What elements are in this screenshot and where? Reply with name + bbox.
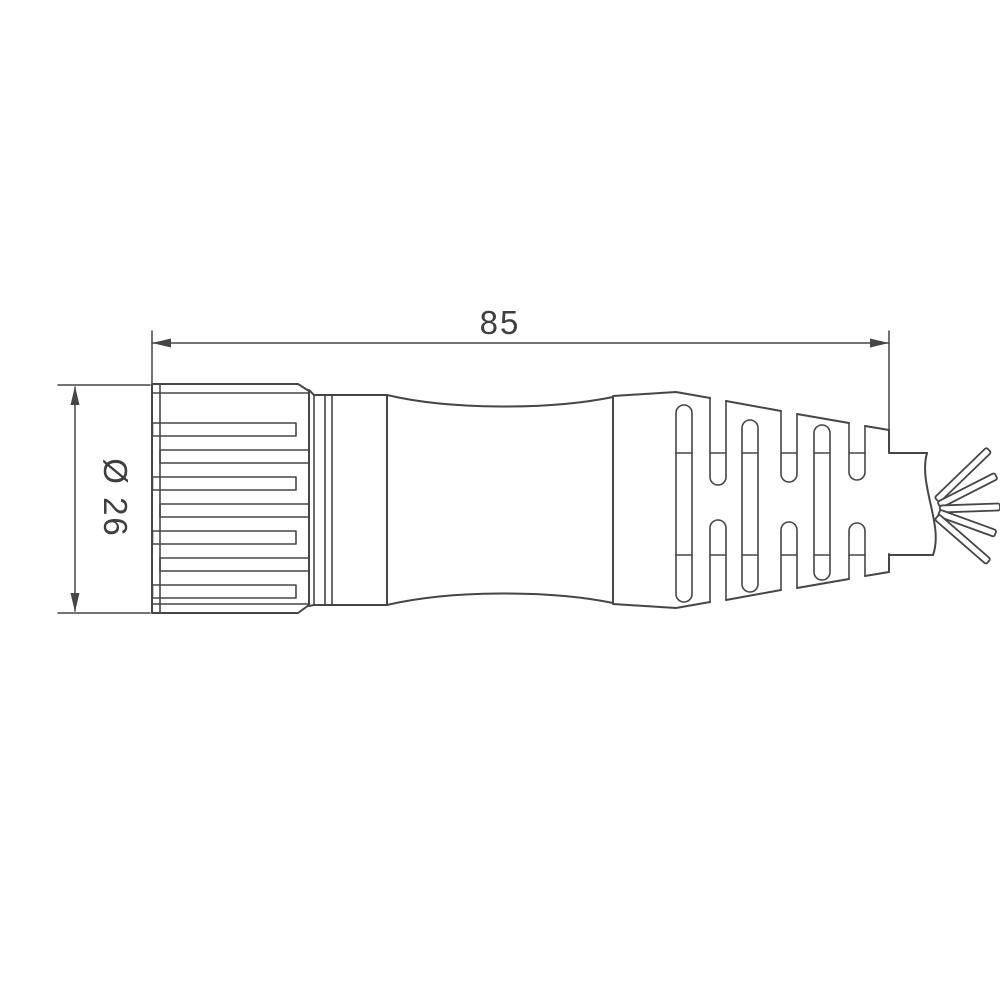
dim-arrow-right-icon <box>870 339 889 348</box>
top-notches <box>710 398 865 485</box>
strain-relief <box>613 392 889 608</box>
diameter-dimension: Ø 26 <box>58 385 150 613</box>
technical-drawing-canvas: 85 Ø 26 <box>0 0 1000 1000</box>
cable-and-wires <box>889 447 1000 564</box>
strain-relief-bottom-edge <box>613 572 889 608</box>
frayed-wires <box>935 447 1000 564</box>
coupling-nut <box>152 384 309 613</box>
diameter-dimension-label: Ø 26 <box>97 458 134 538</box>
collar-ring <box>309 390 387 606</box>
coupling-nut-outline <box>152 384 309 613</box>
flex-slots <box>676 405 830 602</box>
grip-body <box>387 395 613 605</box>
cable-break-line <box>925 453 936 555</box>
strain-relief-top-edge <box>613 392 889 430</box>
length-dimension-label: 85 <box>480 304 521 341</box>
dim-arrow-left-icon <box>152 339 171 348</box>
bottom-notches <box>710 520 865 602</box>
grip-bottom-curve <box>387 593 613 605</box>
knurl-ribs <box>153 423 310 598</box>
grip-top-curve <box>387 395 613 407</box>
dim-arrow-down-icon <box>71 593 80 612</box>
connector-drawing: 85 Ø 26 <box>0 0 1000 1000</box>
dim-arrow-up-icon <box>71 386 80 405</box>
